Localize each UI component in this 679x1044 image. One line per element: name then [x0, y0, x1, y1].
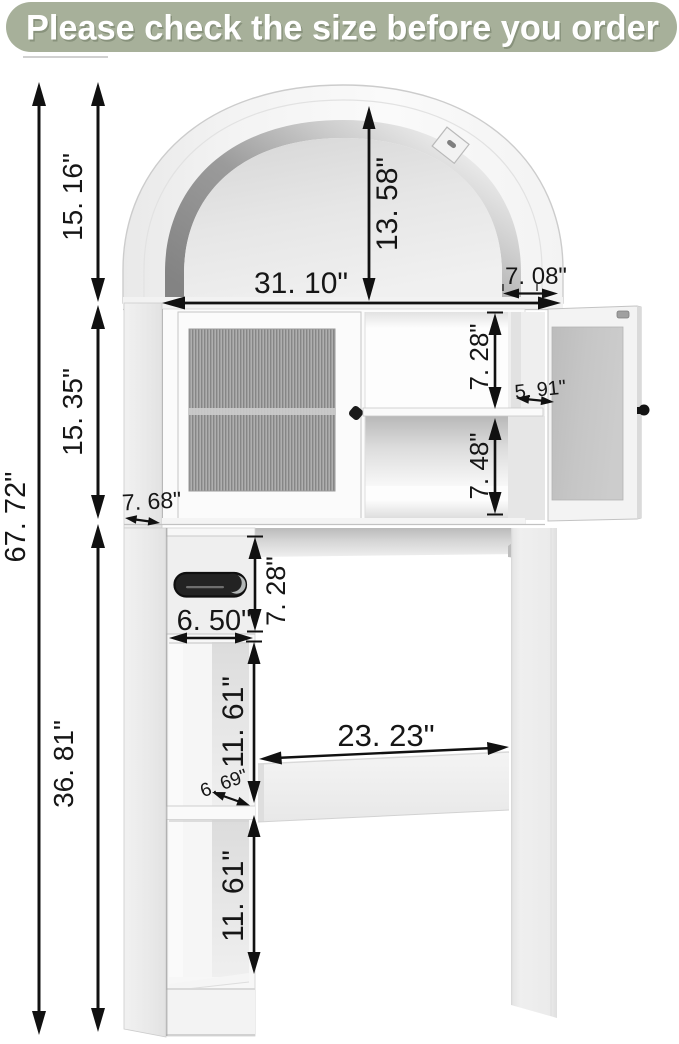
svg-text:7. 28": 7. 28" — [261, 556, 291, 626]
svg-text:7. 28": 7. 28" — [464, 323, 494, 390]
svg-text:7. 08": 7. 08" — [505, 263, 567, 290]
svg-text:7. 48": 7. 48" — [464, 432, 494, 499]
svg-text:11. 61": 11. 61" — [217, 676, 250, 768]
svg-text:15. 16": 15. 16" — [57, 153, 88, 241]
svg-text:36. 81": 36. 81" — [48, 720, 79, 808]
svg-text:15. 35": 15. 35" — [57, 368, 88, 456]
svg-text:7. 68": 7. 68" — [121, 486, 182, 515]
svg-text:67. 72": 67. 72" — [0, 472, 32, 563]
svg-text:6. 50": 6. 50" — [177, 605, 252, 637]
svg-text:31. 10": 31. 10" — [254, 267, 348, 300]
svg-text:23. 23": 23. 23" — [337, 718, 434, 753]
svg-text:Please check the size before y: Please check the size before you order — [26, 9, 659, 48]
svg-text:11. 61": 11. 61" — [217, 850, 250, 942]
svg-text:13. 58": 13. 58" — [371, 157, 404, 251]
